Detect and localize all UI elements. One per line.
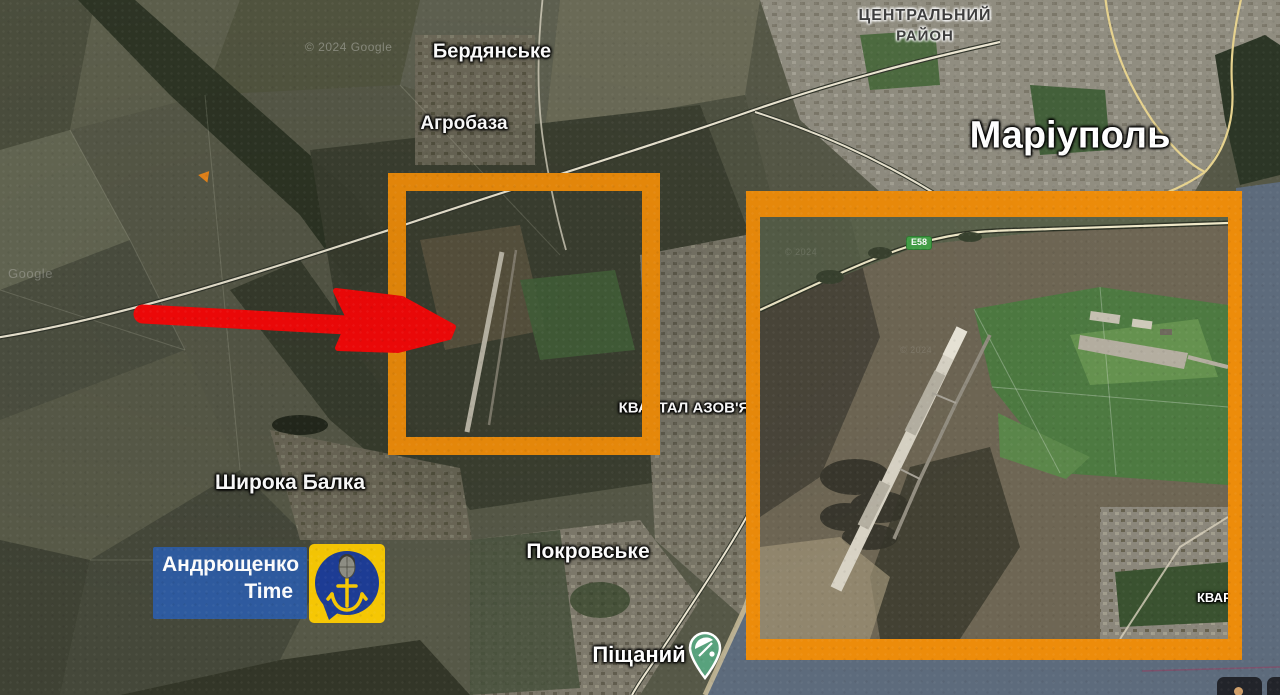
media-control-button-2[interactable] bbox=[1267, 677, 1280, 695]
logo-line2: Time bbox=[244, 580, 293, 604]
anchor-microphone-icon bbox=[309, 544, 385, 623]
channel-logo: Андрющенко Time bbox=[153, 544, 385, 623]
logo-line1: Андрющенко bbox=[162, 553, 299, 577]
media-control-button[interactable] bbox=[1217, 677, 1262, 695]
map-canvas[interactable]: Бердянське Агробаза ЦЕНТРАЛЬНИЙ РАЙОН Ма… bbox=[0, 0, 1280, 695]
logo-badge bbox=[309, 544, 385, 623]
record-dot-icon bbox=[1234, 687, 1243, 695]
logo-text-panel: Андрющенко Time bbox=[153, 547, 307, 619]
